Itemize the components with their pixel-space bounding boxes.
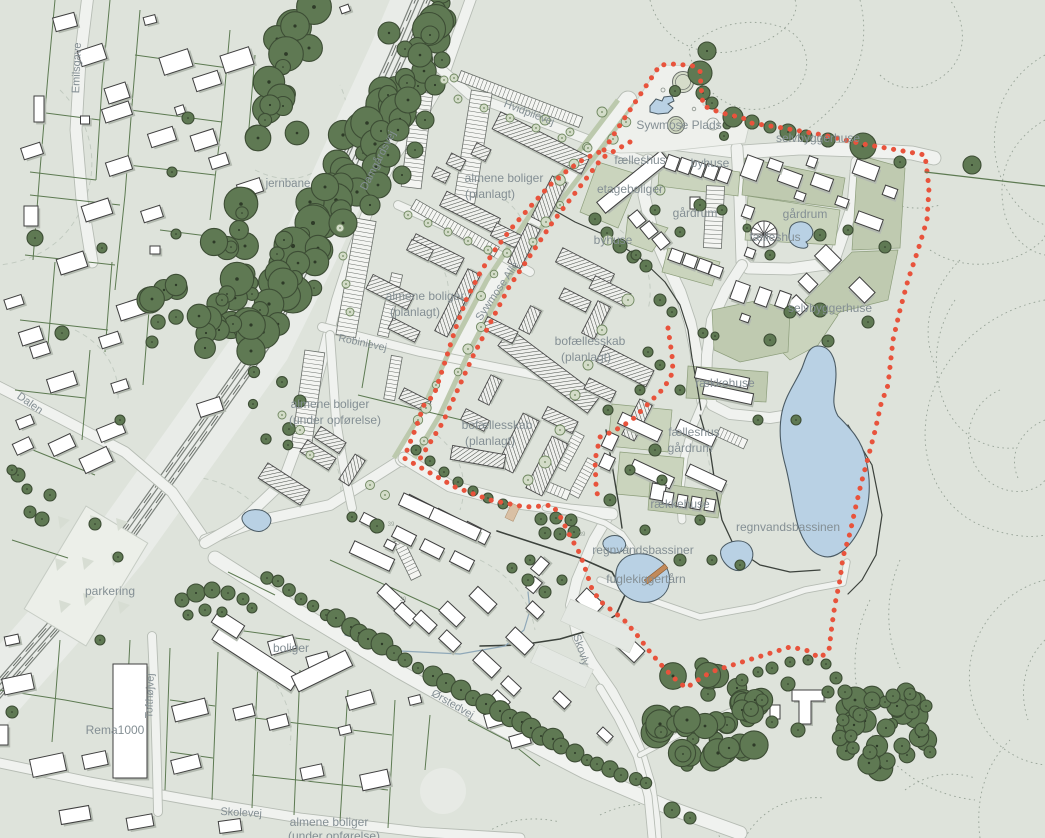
svg-text:fælleshus: fælleshus [668,425,719,439]
svg-text:(under opførelse): (under opførelse) [289,413,381,427]
svg-text:(under opførelse): (under opførelse) [288,829,380,838]
svg-text:almene boliger: almene boliger [291,397,370,411]
svg-text:Skolevej: Skolevej [220,806,262,820]
svg-text:jernbane: jernbane [265,178,311,190]
svg-text:fælleshus: fælleshus [749,230,800,244]
svg-text:Emilsgave: Emilsgave [70,42,84,93]
svg-text:(planlagt): (planlagt) [465,187,515,201]
svg-text:fælleshus: fælleshus [614,153,665,167]
svg-text:fuglekiggertårn: fuglekiggertårn [606,572,685,586]
svg-text:regnvandsbassiner: regnvandsbassiner [592,543,693,557]
svg-text:gårdrum: gårdrum [673,206,718,220]
svg-text:almene boliger: almene boliger [290,815,369,829]
svg-text:bofællesskab: bofællesskab [462,418,533,432]
svg-text:gårdrum: gårdrum [668,441,713,455]
svg-text:gårdrum: gårdrum [783,207,828,221]
svg-text:(planlagt): (planlagt) [561,350,611,364]
svg-text:parkering: parkering [85,584,135,598]
svg-text:boliger: boliger [273,641,309,655]
svg-text:etageboliger: etageboliger [597,182,663,196]
svg-text:(planlagt): (planlagt) [390,305,440,319]
svg-text:selvbyggerhuse: selvbyggerhuse [788,301,872,315]
svg-text:almene boliger: almene boliger [386,289,465,303]
svg-text:39: 39 [400,597,407,603]
svg-text:selvbyggerhuse: selvbyggerhuse [776,131,860,145]
svg-text:rækkehuse: rækkehuse [695,376,755,390]
svg-text:(planlagt): (planlagt) [465,434,515,448]
svg-text:byhuse: byhuse [691,156,730,170]
svg-text:bofællesskab: bofællesskab [555,334,626,348]
svg-text:Sywmose Plads: Sywmose Plads [636,118,721,132]
svg-text:rækkehuse: rækkehuse [650,497,710,511]
svg-text:byhuse: byhuse [594,233,633,247]
svg-text:regnvandsbassinen: regnvandsbassinen [736,520,840,534]
svg-text:Tofthøjvej: Tofthøjvej [143,673,157,718]
svg-text:39: 39 [388,522,395,528]
svg-text:39: 39 [579,532,586,538]
svg-text:Rema1000: Rema1000 [86,723,145,737]
svg-text:almene boliger: almene boliger [465,171,544,185]
